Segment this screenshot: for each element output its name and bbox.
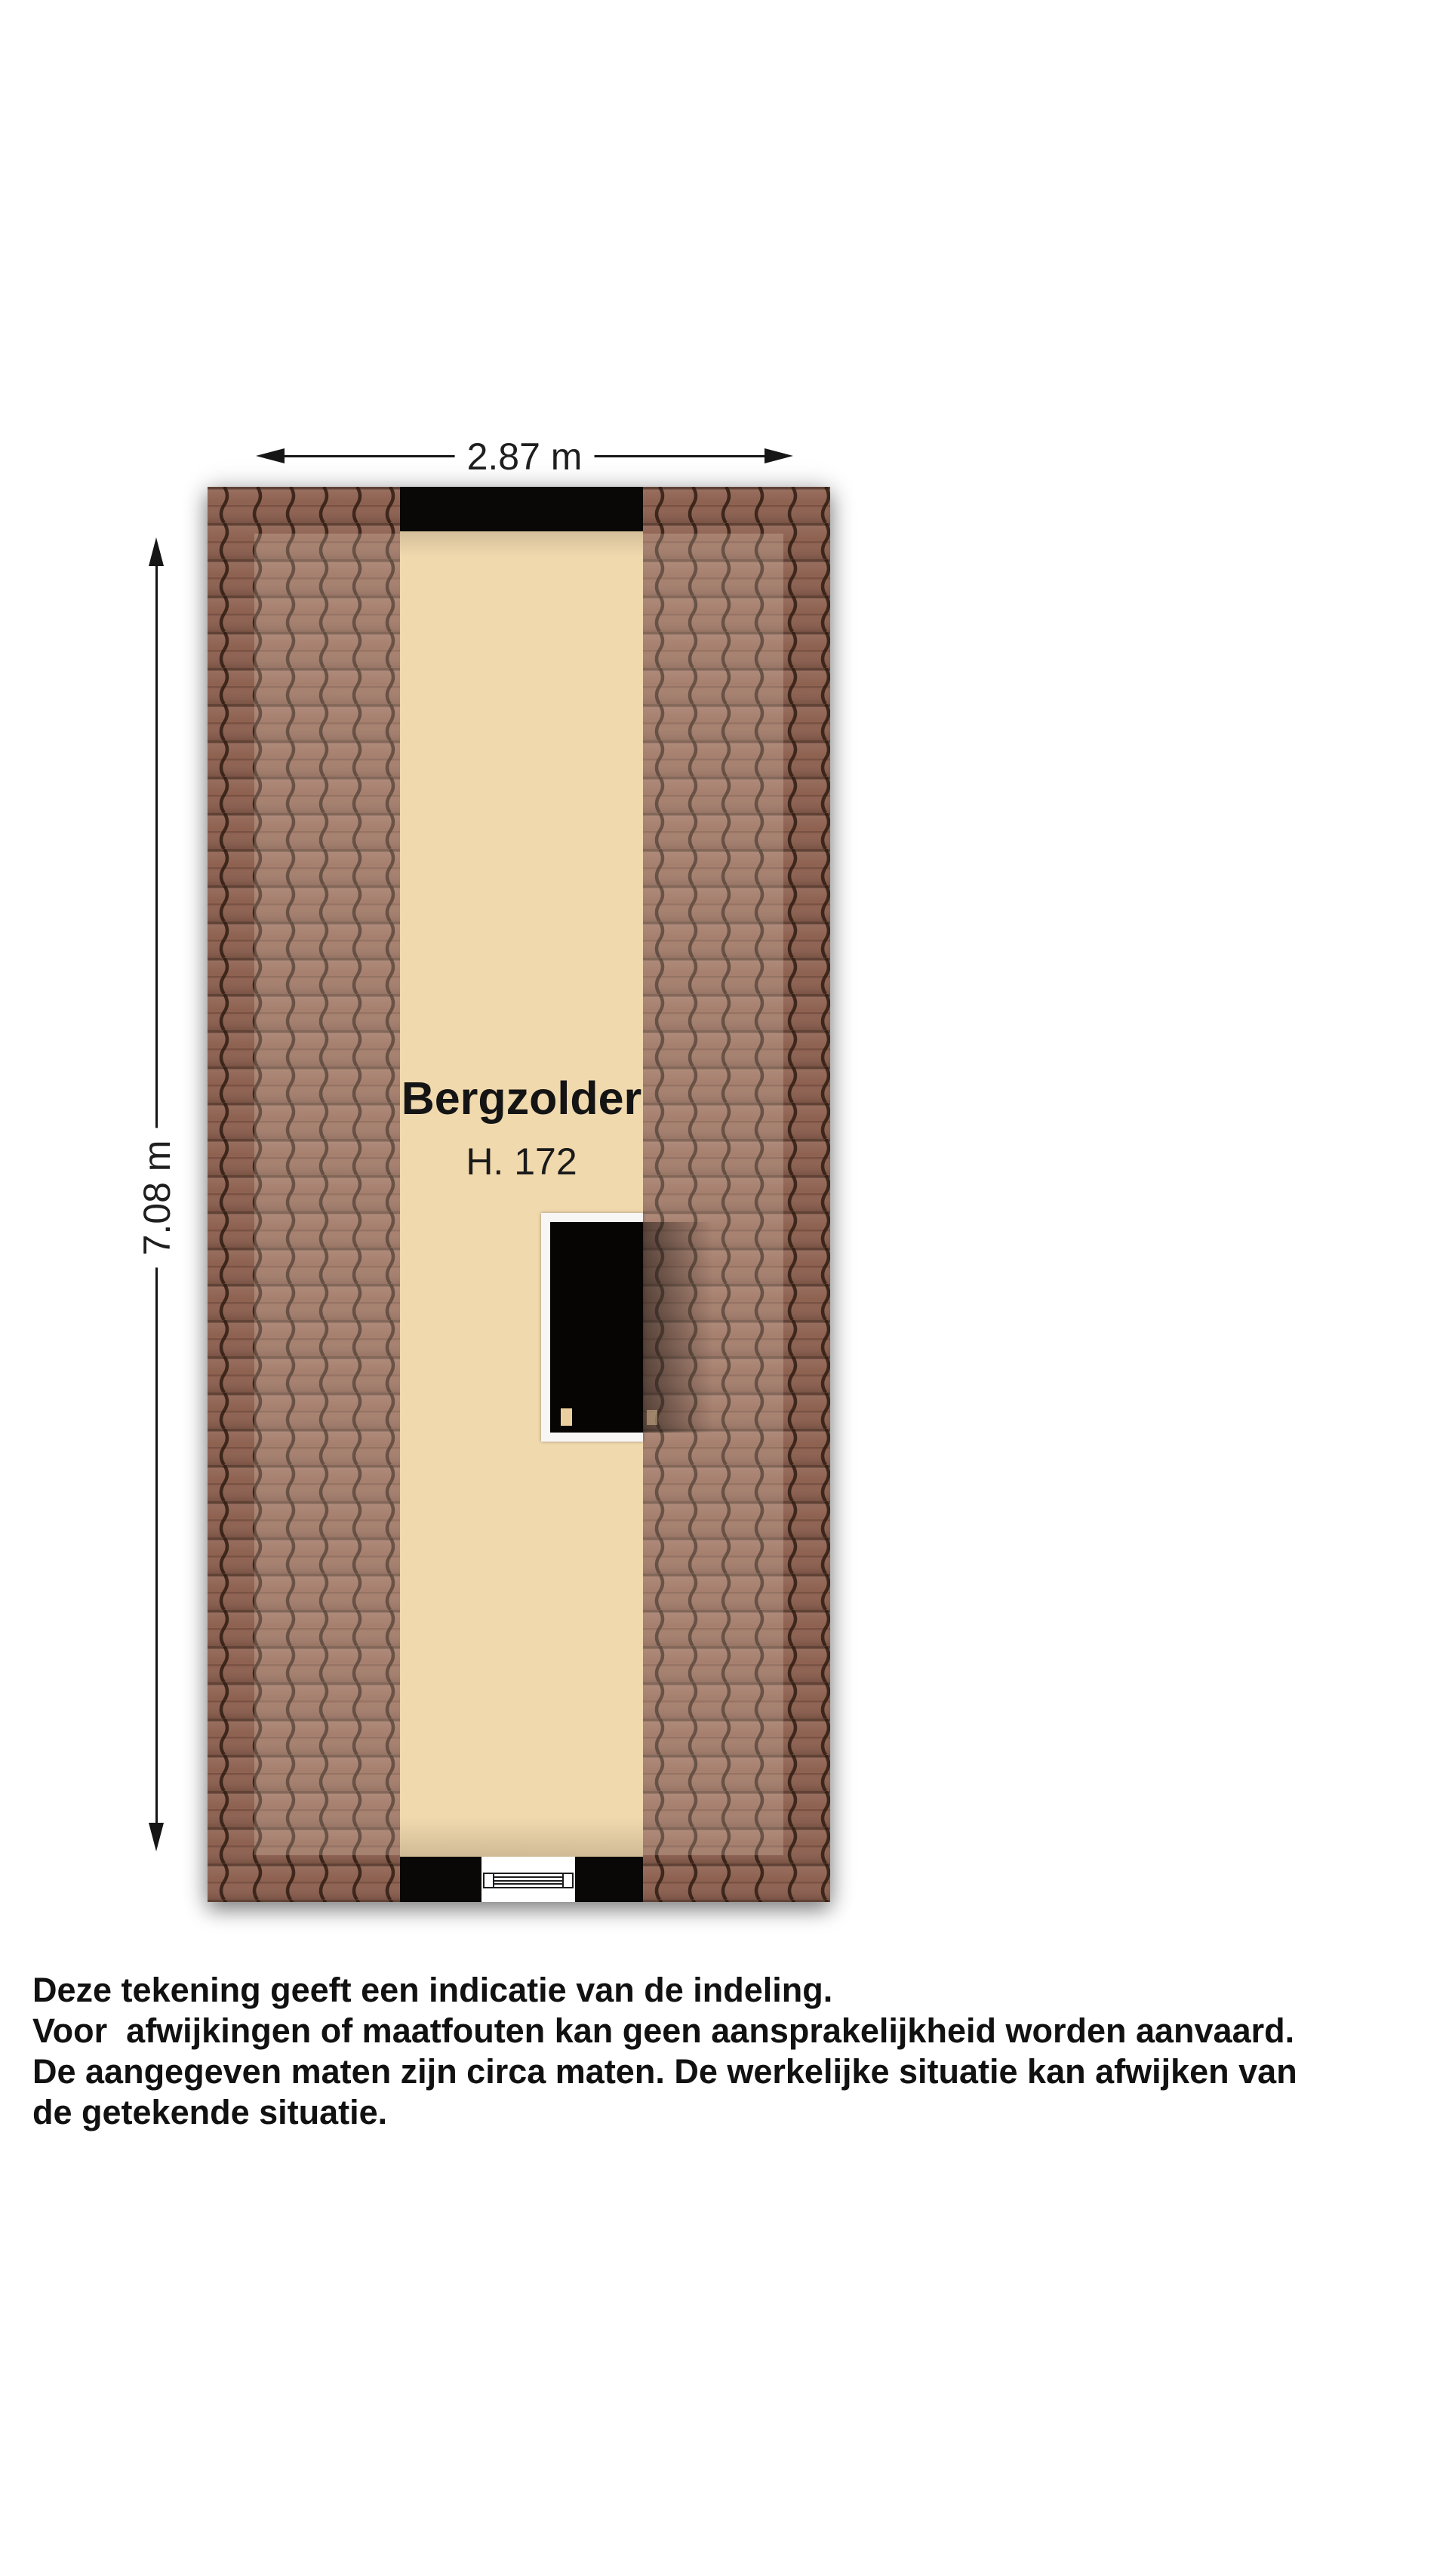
- window-frame-right: [562, 1874, 572, 1887]
- floorplan: Bergzolder H. 172: [208, 487, 830, 1902]
- stair-opening-frame: [541, 1213, 643, 1442]
- arrow-right-icon: [764, 448, 793, 463]
- window-glazing-line: [494, 1876, 562, 1878]
- wall-top: [400, 487, 643, 531]
- wall-bottom-right: [575, 1857, 643, 1902]
- disclaimer-line: Voor afwijkingen of maatfouten kan geen …: [32, 2011, 1444, 2051]
- disclaimer-line: Deze tekening geeft een indicatie van de…: [32, 1970, 1444, 2011]
- arrow-left-icon: [256, 448, 285, 463]
- page: 2.87 m 7.08 m: [0, 0, 1449, 2576]
- window-frame-left: [485, 1874, 494, 1887]
- stair-step-marker-under-roof: [647, 1410, 657, 1425]
- attic-floor: [400, 487, 643, 1902]
- room-height-label: H. 172: [400, 1142, 643, 1182]
- window-glazing-line: [494, 1880, 562, 1882]
- disclaimer: Deze tekening geeft een indicatie van de…: [32, 1970, 1444, 2133]
- stair-step-marker: [561, 1408, 572, 1426]
- width-dimension: 2.87 m: [256, 442, 793, 472]
- arrow-up-icon: [149, 537, 164, 566]
- floor-shade-top: [400, 531, 643, 557]
- disclaimer-line: de getekende situatie.: [32, 2092, 1444, 2133]
- window-gap: [481, 1857, 575, 1902]
- arrow-down-icon: [149, 1823, 164, 1851]
- window-glazing-line: [494, 1883, 562, 1885]
- wall-bottom-left: [400, 1857, 481, 1902]
- stair-opening: [550, 1222, 643, 1433]
- window-symbol: [483, 1873, 574, 1888]
- width-dimension-label: 2.87 m: [455, 433, 595, 480]
- window-glazing: [494, 1874, 562, 1887]
- room-name-label: Bergzolder: [400, 1074, 643, 1122]
- roof-left-highlight: [254, 534, 400, 1855]
- stair-opening-under-roof-shadow: [643, 1222, 713, 1433]
- roof-right-highlight: [643, 534, 783, 1855]
- height-dimension-label: 7.08 m: [134, 1128, 180, 1268]
- disclaimer-line: De aangegeven maten zijn circa maten. De…: [32, 2051, 1444, 2092]
- floor-shade-bottom: [400, 1817, 643, 1857]
- height-dimension: 7.08 m: [142, 537, 172, 1851]
